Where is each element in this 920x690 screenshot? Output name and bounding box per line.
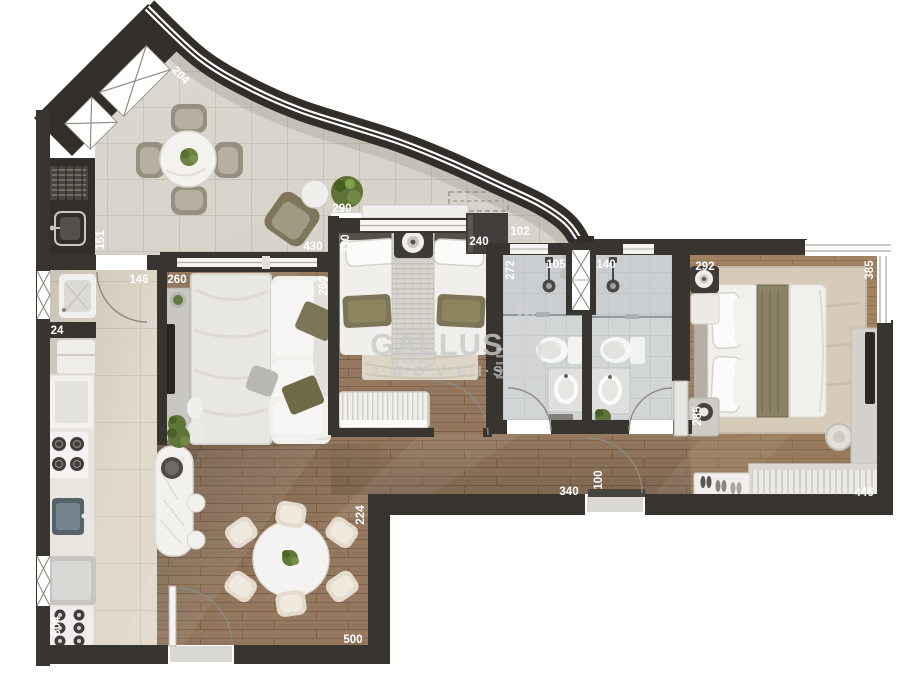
- svg-text:504: 504: [51, 616, 63, 636]
- svg-text:140: 140: [596, 259, 615, 271]
- svg-text:224: 224: [355, 505, 367, 525]
- svg-text:151: 151: [95, 230, 107, 250]
- svg-text:GALLUS: GALLUS: [370, 327, 503, 362]
- svg-text:I·M·Ó·V·E·I·S: I·M·Ó·V·E·I·S: [374, 362, 505, 380]
- svg-text:24: 24: [51, 325, 64, 337]
- svg-text:285: 285: [692, 406, 704, 426]
- svg-text:260: 260: [318, 276, 330, 295]
- svg-text:260: 260: [167, 274, 186, 286]
- svg-text:385: 385: [864, 260, 876, 280]
- svg-text:310: 310: [340, 234, 352, 253]
- svg-text:146: 146: [129, 274, 148, 286]
- svg-text:290: 290: [332, 203, 351, 215]
- svg-text:430: 430: [303, 241, 322, 253]
- svg-text:240: 240: [469, 236, 488, 248]
- svg-text:100: 100: [593, 470, 605, 489]
- svg-text:102: 102: [510, 226, 529, 238]
- svg-text:105: 105: [546, 259, 566, 271]
- svg-text:292: 292: [695, 261, 714, 273]
- svg-text:272: 272: [505, 260, 517, 279]
- svg-text:340: 340: [559, 486, 578, 498]
- svg-text:500: 500: [343, 634, 362, 646]
- svg-text:446: 446: [854, 487, 873, 499]
